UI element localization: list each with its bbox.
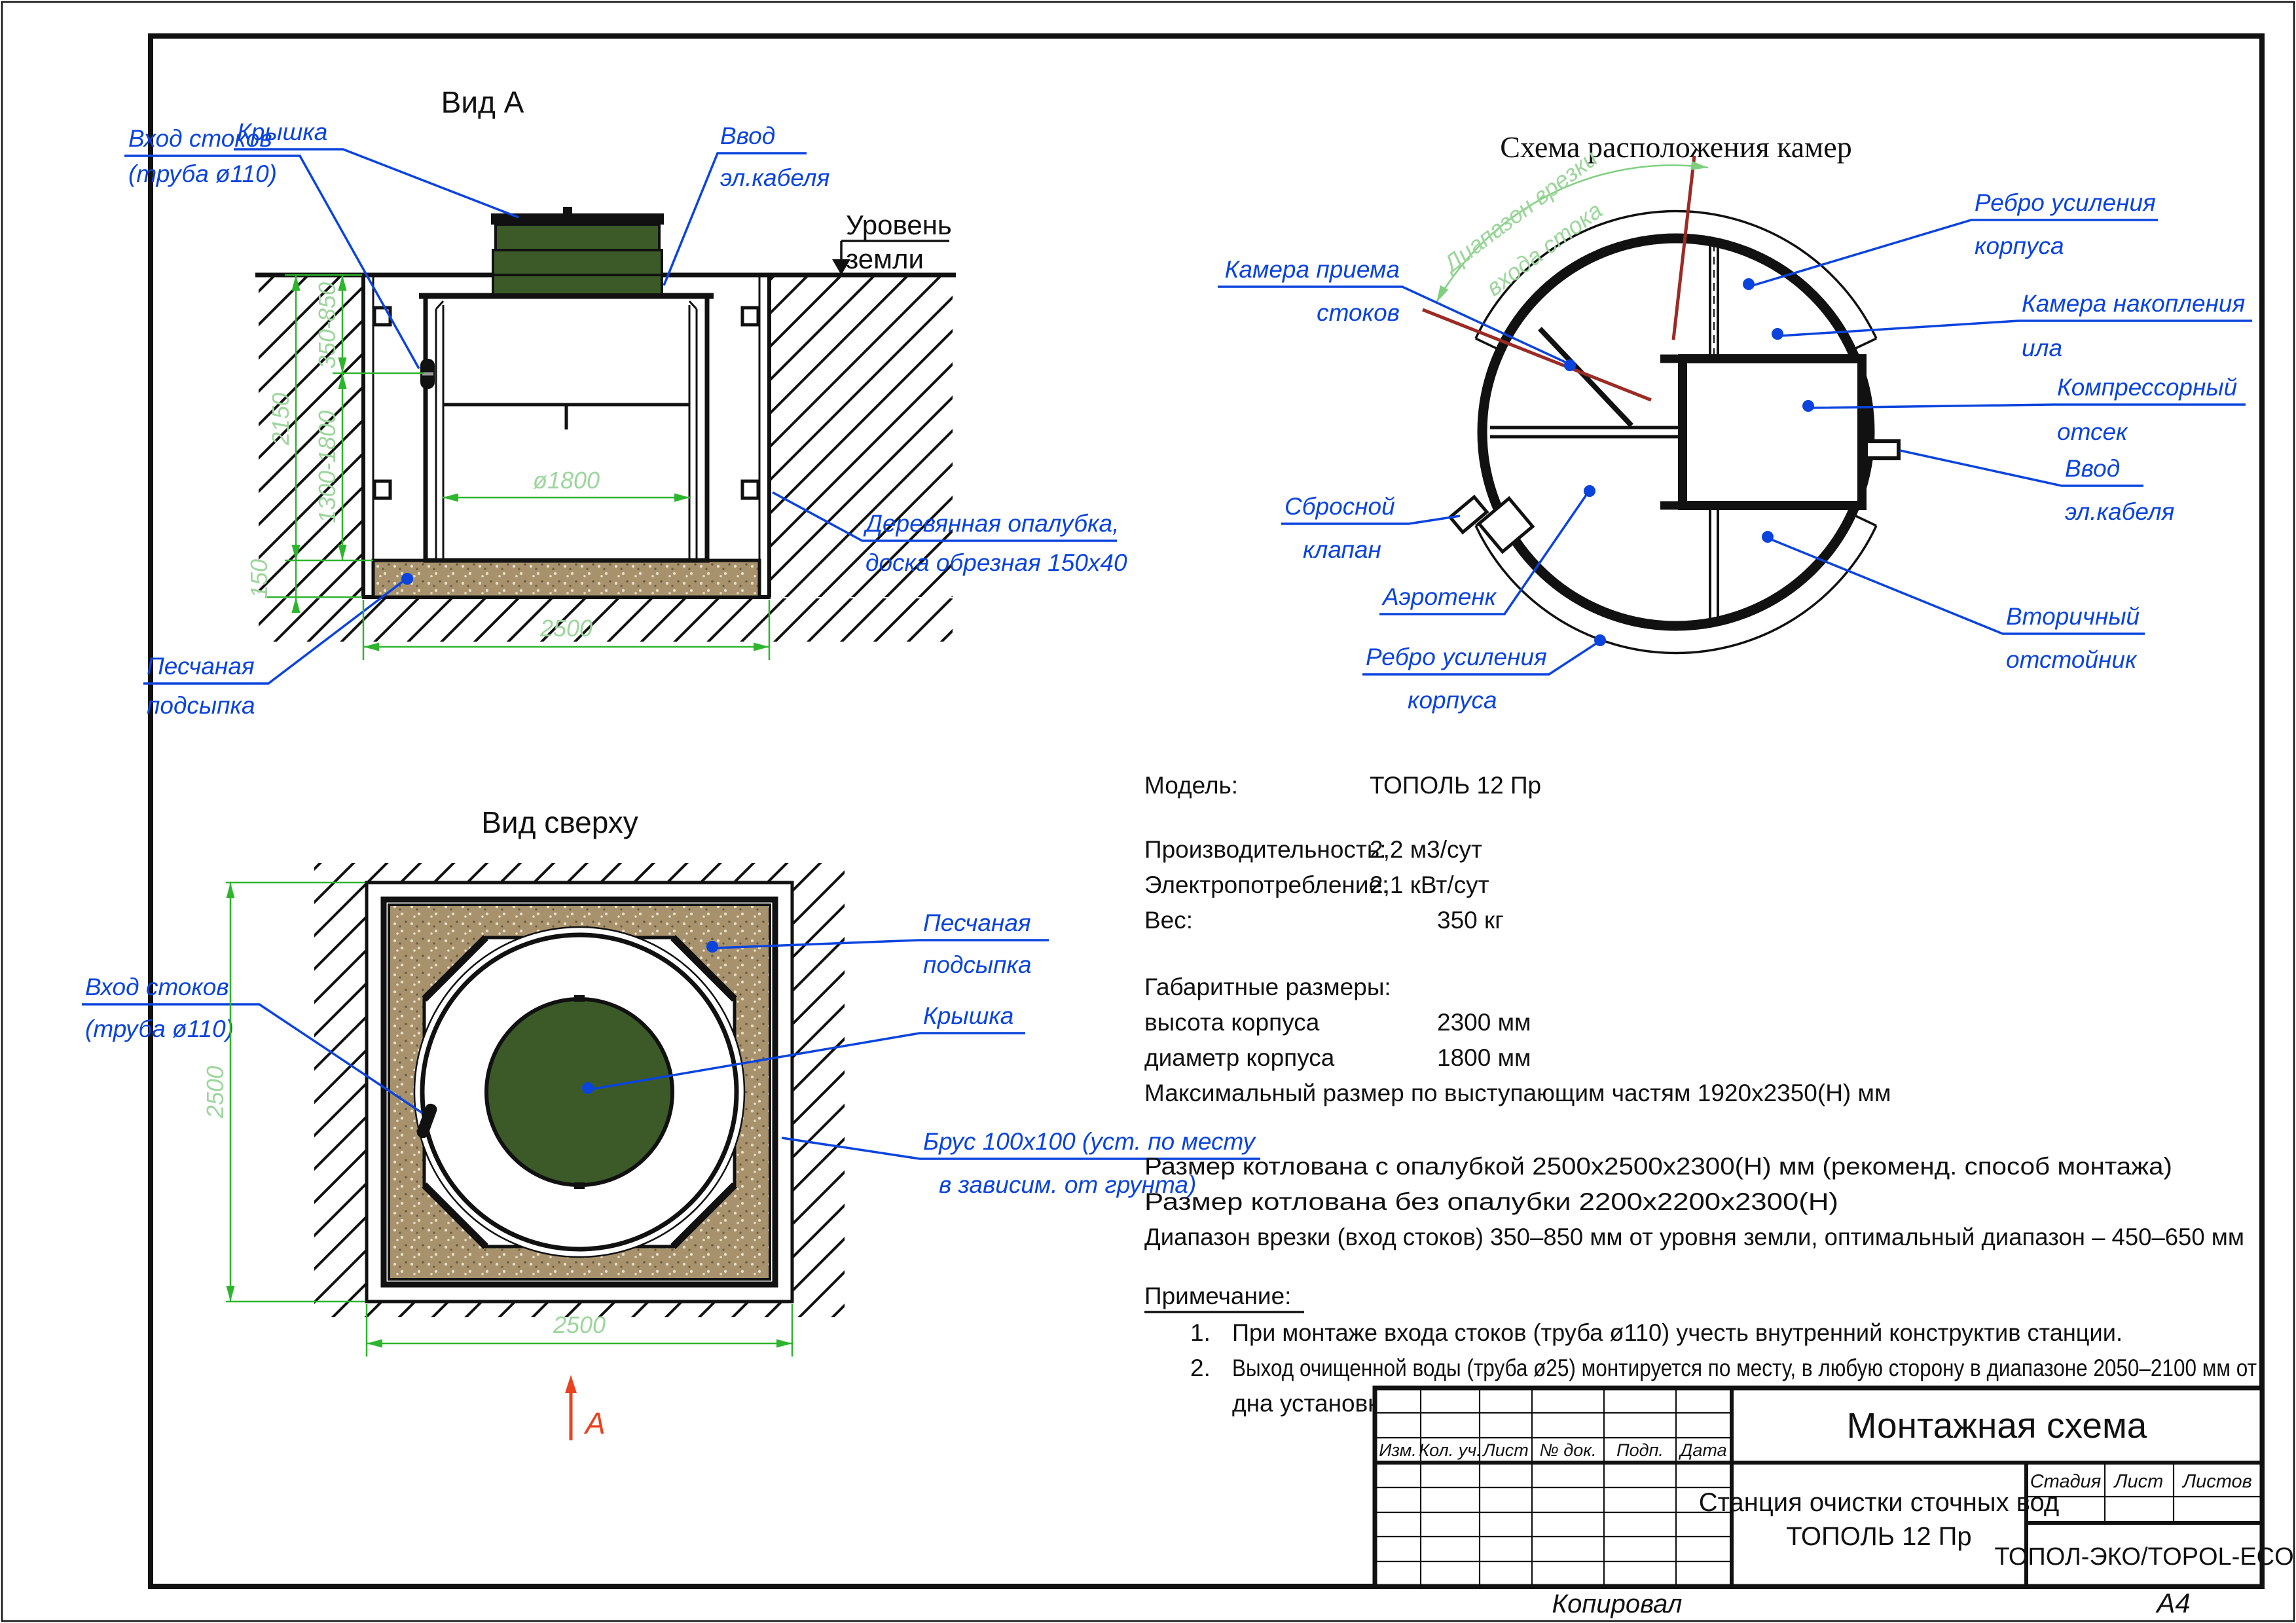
spec-weight-value: 350 кг (1437, 907, 1504, 934)
tb-col-izm: Изм. (1379, 1440, 1417, 1460)
tb-stage: Стадия (2030, 1471, 2102, 1492)
cable-entry-label-2: эл.кабеля (2065, 498, 2175, 525)
top-lid (486, 999, 672, 1185)
spec-pit-formwork: Размер котлована с опалубкой 2500х2500х2… (1144, 1153, 2172, 1180)
top-lid-label: Крышка (923, 1002, 1013, 1029)
ground-level-mark: Уровень земли (832, 210, 952, 275)
sludge-label-2: ила (2022, 335, 2062, 361)
station-lid (491, 207, 664, 295)
intake-label-1: Камера приема (1225, 256, 1400, 283)
spec-max-size: Максимальный размер по выступающим частя… (1144, 1080, 1891, 1106)
dim-inlet-range: 350-850 (314, 282, 340, 369)
top-view-title: Вид сверху (481, 805, 638, 839)
label-cable: Ввод эл.кабеля (664, 122, 830, 285)
rib-top-label-1: Ребро усиления (1975, 189, 2156, 216)
tb-company: ТОПОЛ-ЭКО/TOPOL-ECO (1994, 1543, 2293, 1571)
cable-gland (1866, 441, 1899, 458)
notes-header: Примечание: (1144, 1283, 1291, 1309)
lid-label: Крышка (237, 119, 327, 145)
compressor-label-1: Компрессорный (2057, 374, 2237, 401)
tb-scheme-title: Монтажная схема (1847, 1405, 2147, 1446)
view-a-section: Вид А (124, 85, 1127, 719)
dim-pit-width: 2500 (539, 615, 592, 642)
spec-model-label: Модель: (1144, 772, 1238, 799)
tb-col-data: Дата (1678, 1440, 1726, 1460)
top-lid-tick-s (574, 1182, 585, 1189)
formwork-label-2: доска обрезная 150х40 (866, 549, 1127, 576)
top-lid-tick-n (574, 995, 585, 1002)
tb-doc-name-2: ТОПОЛЬ 12 Пр (1786, 1522, 1971, 1551)
label-cable-entry: Ввод эл.кабеля (1900, 450, 2175, 525)
spec-dims-header: Габаритные размеры: (1144, 974, 1391, 1000)
label-rib-top: Ребро усиления корпуса (1743, 189, 2158, 290)
top-sand-label-2: подсыпка (923, 951, 1032, 978)
formwork-label-1: Деревянная опалубка, (863, 510, 1119, 537)
rib-top-label-2: корпуса (1975, 232, 2064, 259)
view-a-title: Вид А (441, 85, 524, 119)
tb-col-doc: № док. (1540, 1440, 1597, 1460)
compressor-box (1683, 359, 1862, 505)
rib-bottom-label-1: Ребро усиления (1366, 644, 1547, 670)
sand-label-1: Песчаная (147, 653, 255, 680)
secondary-label-2: отстойник (2006, 646, 2138, 673)
note-1-text: При монтаже входа стоков (труба ø110) уч… (1232, 1319, 2123, 1346)
footer-copied-label: Копировал (1552, 1590, 1683, 1618)
spec-model-value: ТОПОЛЬ 12 Пр (1370, 772, 1541, 799)
title-block: Изм. Кол. уч. Лист № док. Подп. Дата Мон… (1375, 1388, 2294, 1586)
spec-height-value: 2300 мм (1437, 1009, 1531, 1036)
tb-sheets: Листов (2181, 1471, 2252, 1492)
secondary-label-1: Вторичный (2006, 603, 2140, 630)
cable-label-1: Ввод (720, 122, 775, 149)
dim-body-range: 1300-1800 (314, 410, 340, 523)
tb-col-kol: Кол. уч. (1419, 1440, 1482, 1460)
sand-label-2: подсыпка (147, 692, 255, 719)
spec-perf-label: Производительность: (1144, 836, 1386, 863)
rib-bottom-label-2: корпуса (1408, 687, 1497, 714)
tb-col-podp: Подп. (1616, 1440, 1664, 1460)
intake-label-2: стоков (1317, 299, 1400, 326)
top-sand-label-1: Песчаная (923, 909, 1031, 936)
sludge-label-1: Камера накопления (2022, 290, 2245, 317)
drawing-frame (151, 36, 2262, 1586)
spec-block: Модель: ТОПОЛЬ 12 Пр Производительность:… (1144, 772, 2244, 1250)
dim-sand: 150 (246, 559, 272, 598)
chamber-diagram-title: Схема расположения камер (1500, 130, 1851, 164)
label-relief-valve: Сбросной клапан (1281, 493, 1460, 563)
drawing-sheet: Вид А (0, 0, 2296, 1623)
station-body (419, 296, 714, 560)
top-beam-label-1: Брус 100х100 (уст. по месту (923, 1128, 1256, 1155)
top-dim-vertical: 2500 (202, 1066, 228, 1119)
spec-height-label: высота корпуса (1144, 1009, 1320, 1036)
spec-perf-value: 2,2 м3/сут (1370, 836, 1482, 863)
dim-depth-total: 2150 (267, 393, 294, 446)
spec-weight-label: Вес: (1144, 907, 1193, 934)
top-view: Вид сверху Вход стоков (труба ø110) Песч… (82, 805, 1260, 1440)
tb-sheet: Лист (2113, 1471, 2164, 1492)
drawing-canvas: Вид А (0, 0, 2296, 1623)
spec-diameter-label: диаметр корпуса (1144, 1044, 1335, 1071)
footer-format-label: А4 (2155, 1588, 2190, 1618)
valve-label-2: клапан (1303, 536, 1381, 563)
note-2-text-a: Выход очищенной воды (труба ø25) монтиру… (1232, 1355, 2257, 1381)
top-inlet-label-1: Вход стоков (85, 974, 229, 1000)
aerotank-label: Аэротенк (1381, 583, 1497, 610)
label-rib-bottom: Ребро усиления корпуса (1362, 634, 1606, 714)
top-dim-horizontal: 2500 (553, 1311, 606, 1338)
spec-power-value: 2,1 кВт/сут (1370, 871, 1489, 898)
dim-diameter: ø1800 (533, 467, 600, 494)
top-inlet-label-2: (труба ø110) (85, 1015, 234, 1042)
chamber-diagram: Схема расположения камер (1218, 130, 2252, 714)
tb-doc-name-1: Станция очистки сточных вод (1699, 1488, 2060, 1517)
spec-pit-plain: Размер котлована без опалубки 2200х2200х… (1144, 1188, 1838, 1215)
note-1-number: 1. (1190, 1319, 1211, 1346)
sand-bed (373, 560, 759, 597)
compressor-label-2: отсек (2057, 418, 2128, 445)
section-mark-text: А (583, 1406, 606, 1440)
note-2-number: 2. (1190, 1355, 1211, 1381)
ground-level-text-2: земли (846, 244, 924, 274)
cable-label-2: эл.кабеля (720, 164, 830, 191)
spec-diameter-value: 1800 мм (1437, 1044, 1531, 1071)
spec-inlet-range: Диапазон врезки (вход стоков) 350–850 мм… (1144, 1224, 2244, 1250)
valve-label-1: Сбросной (1285, 493, 1395, 520)
section-arrow: А (565, 1375, 606, 1440)
sheet-footer: Копировал А4 (1552, 1588, 2191, 1618)
spec-power-label: Электропотребление: (1144, 871, 1389, 898)
inlet-label-2: (труба ø110) (128, 160, 277, 187)
ground-level-text-1: Уровень (846, 210, 952, 240)
tb-col-list: Лист (1482, 1440, 1529, 1460)
cable-entry-label-1: Ввод (2065, 455, 2120, 482)
